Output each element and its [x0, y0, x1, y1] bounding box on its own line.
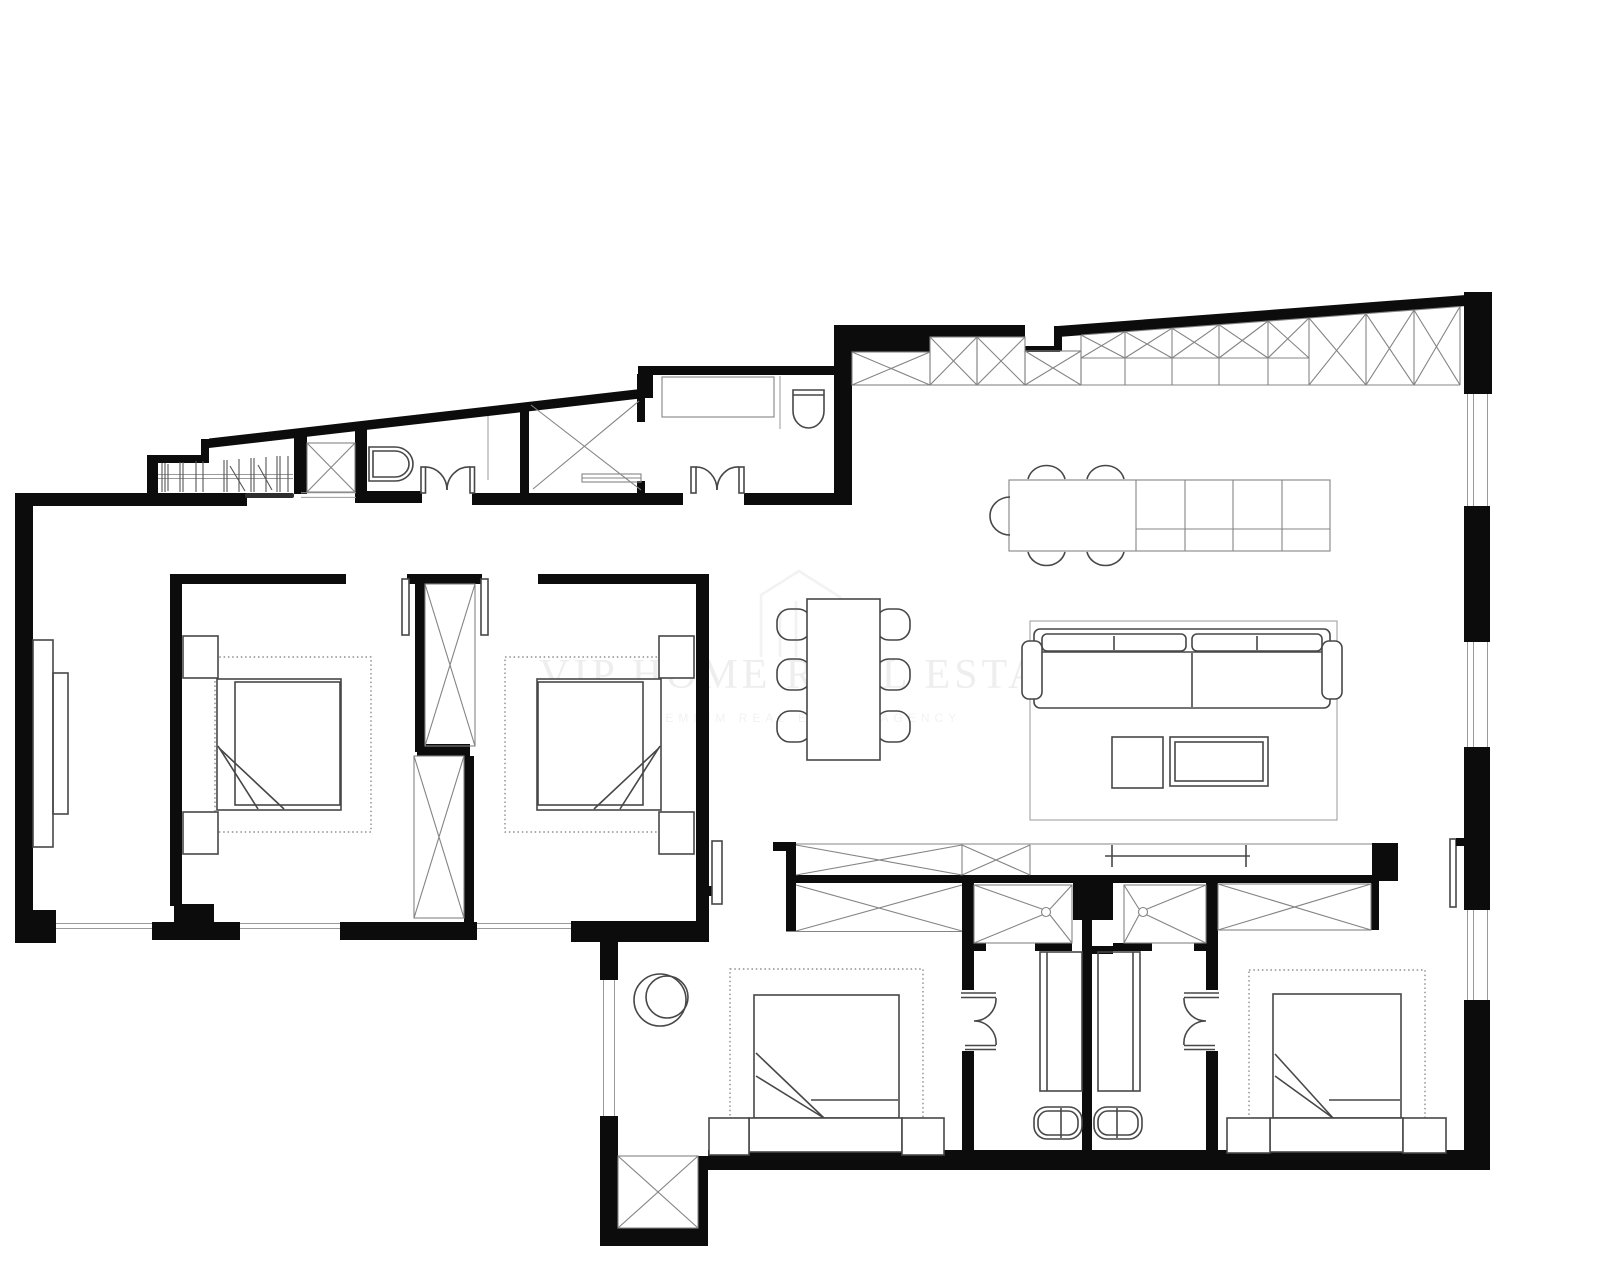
svg-text:PREMIUM REAL ESTATE AGENCY: PREMIUM REAL ESTATE AGENCY	[639, 711, 961, 725]
